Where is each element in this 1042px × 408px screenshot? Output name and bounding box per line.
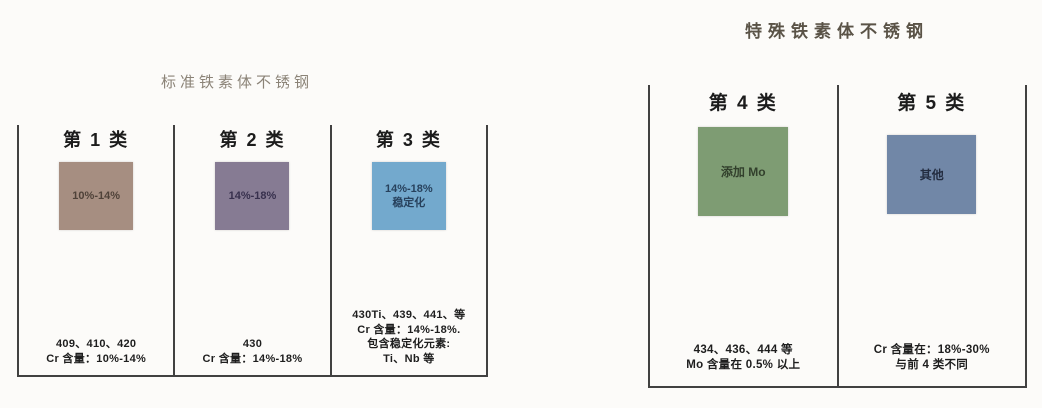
- note-line: Cr 含量：14%-18%: [177, 352, 327, 367]
- category-column-1: 第 1 类 10%-14% 409、410、420 Cr 含量：10%-14%: [17, 125, 173, 375]
- category-column-3: 第 3 类 14%-18% 稳定化 430Ti、439、441、等 Cr 含量：…: [330, 125, 488, 375]
- note-line: Mo 含量在 0.5% 以上: [652, 358, 835, 373]
- note-line: 430: [177, 337, 327, 352]
- category-5-box-label: 其他: [920, 168, 944, 182]
- note-line: 包含稳定化元素:: [334, 337, 484, 352]
- category-3-color-box: 14%-18% 稳定化: [372, 162, 446, 230]
- category-column-5: 第 5 类 其他 Cr 含量在：18%-30% 与前 4 类不同: [837, 85, 1028, 386]
- category-2-header: 第 2 类: [175, 126, 329, 152]
- category-2-box-label: 14%-18%: [229, 189, 277, 203]
- note-line: Cr 含量：14%-18%.: [334, 323, 484, 338]
- category-4-notes: 434、436、444 等 Mo 含量在 0.5% 以上: [652, 343, 835, 373]
- note-line: Cr 含量在：18%-30%: [841, 343, 1024, 358]
- category-2-notes: 430 Cr 含量：14%-18%: [177, 337, 327, 366]
- category-5-color-box: 其他: [887, 135, 976, 214]
- category-1-header: 第 1 类: [19, 126, 173, 152]
- special-group-title: 特殊铁素体不锈钢: [717, 17, 957, 42]
- category-1-notes: 409、410、420 Cr 含量：10%-14%: [21, 337, 171, 366]
- category-2-color-box: 14%-18%: [215, 162, 289, 230]
- category-4-header: 第 4 类: [650, 88, 837, 115]
- category-column-4: 第 4 类 添加 Mo 434、436、444 等 Mo 含量在 0.5% 以上: [648, 85, 837, 386]
- note-line: 409、410、420: [21, 337, 171, 352]
- note-line: Cr 含量：10%-14%: [21, 352, 171, 367]
- category-5-notes: Cr 含量在：18%-30% 与前 4 类不同: [841, 343, 1024, 373]
- category-1-color-box: 10%-14%: [59, 162, 133, 230]
- category-4-color-box: 添加 Mo: [698, 127, 788, 216]
- category-4-box-label: 添加 Mo: [721, 165, 766, 179]
- standard-group-panel: 第 1 类 10%-14% 409、410、420 Cr 含量：10%-14% …: [17, 125, 488, 377]
- ferritic-stainless-steel-diagram: 标准铁素体不锈钢 特殊铁素体不锈钢 第 1 类 10%-14% 409、410、…: [0, 0, 1042, 408]
- special-group-panel: 第 4 类 添加 Mo 434、436、444 等 Mo 含量在 0.5% 以上…: [648, 85, 1027, 388]
- note-line: 430Ti、439、441、等: [334, 308, 484, 323]
- note-line: 434、436、444 等: [652, 343, 835, 358]
- note-line: Ti、Nb 等: [334, 352, 484, 367]
- note-line: 与前 4 类不同: [841, 358, 1024, 373]
- category-3-header: 第 3 类: [332, 126, 486, 152]
- category-3-box-label-line1: 14%-18%: [385, 182, 433, 196]
- category-3-box-label-line2: 稳定化: [392, 196, 425, 210]
- standard-group-title: 标准铁素体不锈钢: [117, 71, 357, 92]
- category-column-2: 第 2 类 14%-18% 430 Cr 含量：14%-18%: [173, 125, 329, 375]
- category-1-box-label: 10%-14%: [72, 189, 120, 203]
- category-5-header: 第 5 类: [839, 88, 1026, 115]
- category-3-notes: 430Ti、439、441、等 Cr 含量：14%-18%. 包含稳定化元素: …: [334, 308, 484, 366]
